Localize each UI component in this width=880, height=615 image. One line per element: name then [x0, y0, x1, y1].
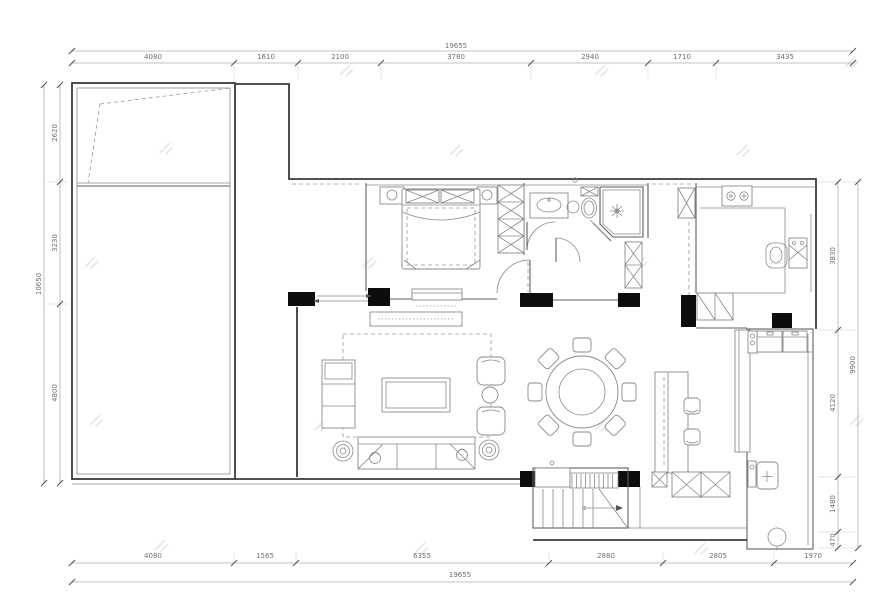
- dimension-left: 10650 2620 3230 4800: [35, 82, 63, 486]
- master-bathroom: [530, 178, 598, 218]
- floor-plan-page: 19655 4080 1610 2100 3780 2940 1710 3435…: [0, 0, 880, 615]
- dim-left-seg-2: 3230: [51, 234, 59, 252]
- dim-bottom-seg-4: 2880: [597, 552, 615, 560]
- dimension-bottom: 4080 1565 6355 2880 2805 1970 19655: [69, 552, 856, 585]
- dim-left-seg-1: 2620: [51, 124, 59, 142]
- dim-bottom-seg-2: 1565: [256, 552, 274, 560]
- floor-plan-canvas: 19655 4080 1610 2100 3780 2940 1710 3435…: [0, 0, 880, 615]
- dining-set: [528, 338, 636, 446]
- laundry-room: [748, 331, 807, 550]
- dim-top-seg-1: 4080: [144, 53, 162, 61]
- dim-top-total: 19655: [445, 42, 467, 50]
- dim-top-seg-6: 1710: [673, 53, 691, 61]
- dim-left-total: 10650: [35, 273, 43, 295]
- dim-top-seg-2: 1610: [257, 53, 275, 61]
- sliding-door: [313, 294, 372, 303]
- dim-top-seg-3: 2100: [331, 53, 349, 61]
- dim-bottom-seg-6: 1970: [804, 552, 822, 560]
- dim-right-seg-4: 470: [829, 533, 837, 546]
- bedroom-furniture: [380, 185, 524, 306]
- dim-top-seg-7: 3435: [776, 53, 794, 61]
- dim-bottom-total: 19655: [449, 571, 471, 579]
- kitchen-island: [655, 330, 750, 473]
- dim-top-seg-5: 2940: [581, 53, 599, 61]
- hall-cabinets: [625, 188, 695, 288]
- dim-bottom-seg-5: 2805: [709, 552, 727, 560]
- dim-right-seg-3: 1480: [829, 495, 837, 513]
- dim-top-seg-4: 3780: [447, 53, 465, 61]
- dimension-right: 3830 4120 1480 470 9900: [829, 179, 861, 551]
- dim-right-seg-2: 4120: [829, 394, 837, 412]
- living-room: [322, 312, 505, 469]
- dim-left-seg-3: 4800: [51, 384, 59, 402]
- dim-right-seg-1: 3830: [829, 247, 837, 265]
- dim-right-total: 9900: [849, 356, 857, 374]
- shower-room: [600, 187, 643, 237]
- dim-bottom-seg-3: 6355: [413, 552, 431, 560]
- kitchen: [697, 186, 807, 320]
- dim-bottom-seg-1: 4080: [144, 552, 162, 560]
- dimension-top: 19655 4080 1610 2100 3780 2940 1710 3435: [69, 42, 856, 66]
